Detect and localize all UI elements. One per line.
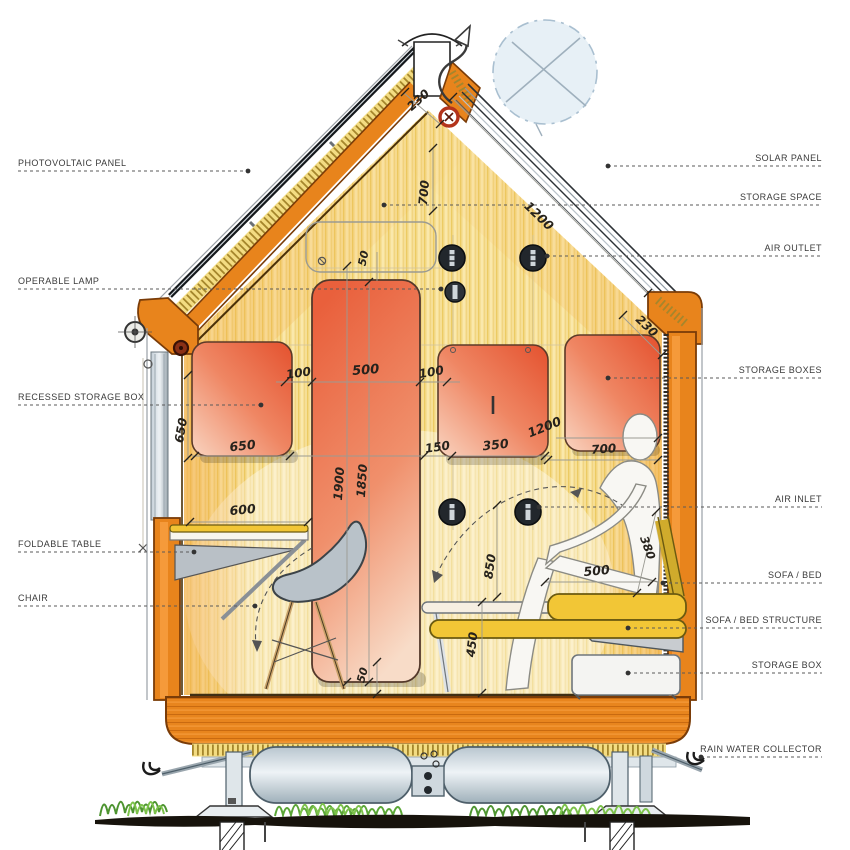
cabin-section-diagram: 230 50 700 1200 230 100 500 100 650 650 … <box>0 0 850 850</box>
callout-sofa-bed-structure: SOFA / BED STRUCTURE <box>705 615 822 625</box>
callout-sofa-bed: SOFA / BED <box>768 570 822 580</box>
svg-text:600: 600 <box>229 501 257 518</box>
svg-text:500: 500 <box>352 362 380 379</box>
svg-text:700: 700 <box>416 180 432 206</box>
callout-solar-panel: SOLAR PANEL <box>755 153 822 163</box>
callout-foldable-table: FOLDABLE TABLE <box>18 539 102 549</box>
section-drawing: 230 50 700 1200 230 100 500 100 650 650 … <box>0 0 850 850</box>
svg-text:700: 700 <box>591 441 617 457</box>
callout-rain-water-collector: RAIN WATER COLLECTOR <box>700 744 822 754</box>
callout-operable-lamp: OPERABLE LAMP <box>18 276 99 286</box>
callout-storage-box: STORAGE BOX <box>752 660 822 670</box>
under-sofa-storage-box <box>572 655 680 695</box>
callout-recessed-storage-box: RECESSED STORAGE BOX <box>18 392 144 402</box>
svg-text:1900: 1900 <box>331 467 347 501</box>
callout-air-outlet: AIR OUTLET <box>764 243 822 253</box>
ridge-fan-icon <box>440 108 458 126</box>
svg-text:1850: 1850 <box>354 464 370 498</box>
interior-lamp-icon <box>445 282 465 302</box>
svg-text:350: 350 <box>482 436 510 454</box>
svg-text:650: 650 <box>229 437 257 455</box>
callout-photovoltaic-panel: PHOTOVOLTAIC PANEL <box>18 158 126 168</box>
callout-air-inlet: AIR INLET <box>775 494 822 504</box>
svg-text:500: 500 <box>583 562 611 579</box>
callout-storage-space: STORAGE SPACE <box>740 192 822 202</box>
callout-storage-boxes: STORAGE BOXES <box>739 365 822 375</box>
callout-chair: CHAIR <box>18 593 48 603</box>
floor <box>166 697 690 750</box>
rain-gutter-left-icon <box>143 762 160 774</box>
sun-icon <box>493 20 597 136</box>
